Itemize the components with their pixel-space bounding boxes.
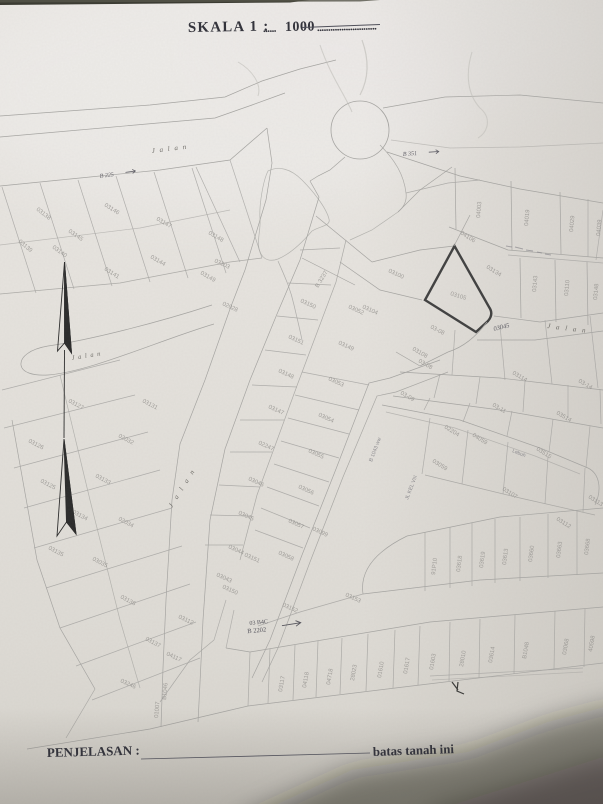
svg-text:PENJELASAN :: PENJELASAN : [47,743,140,760]
svg-text:batas tanah ini: batas tanah ini [373,742,455,759]
svg-text:......: ...... [263,23,277,35]
svg-text:...........................: ........................... [317,20,377,34]
svg-text:SKALA 1 :: SKALA 1 : [188,19,270,36]
